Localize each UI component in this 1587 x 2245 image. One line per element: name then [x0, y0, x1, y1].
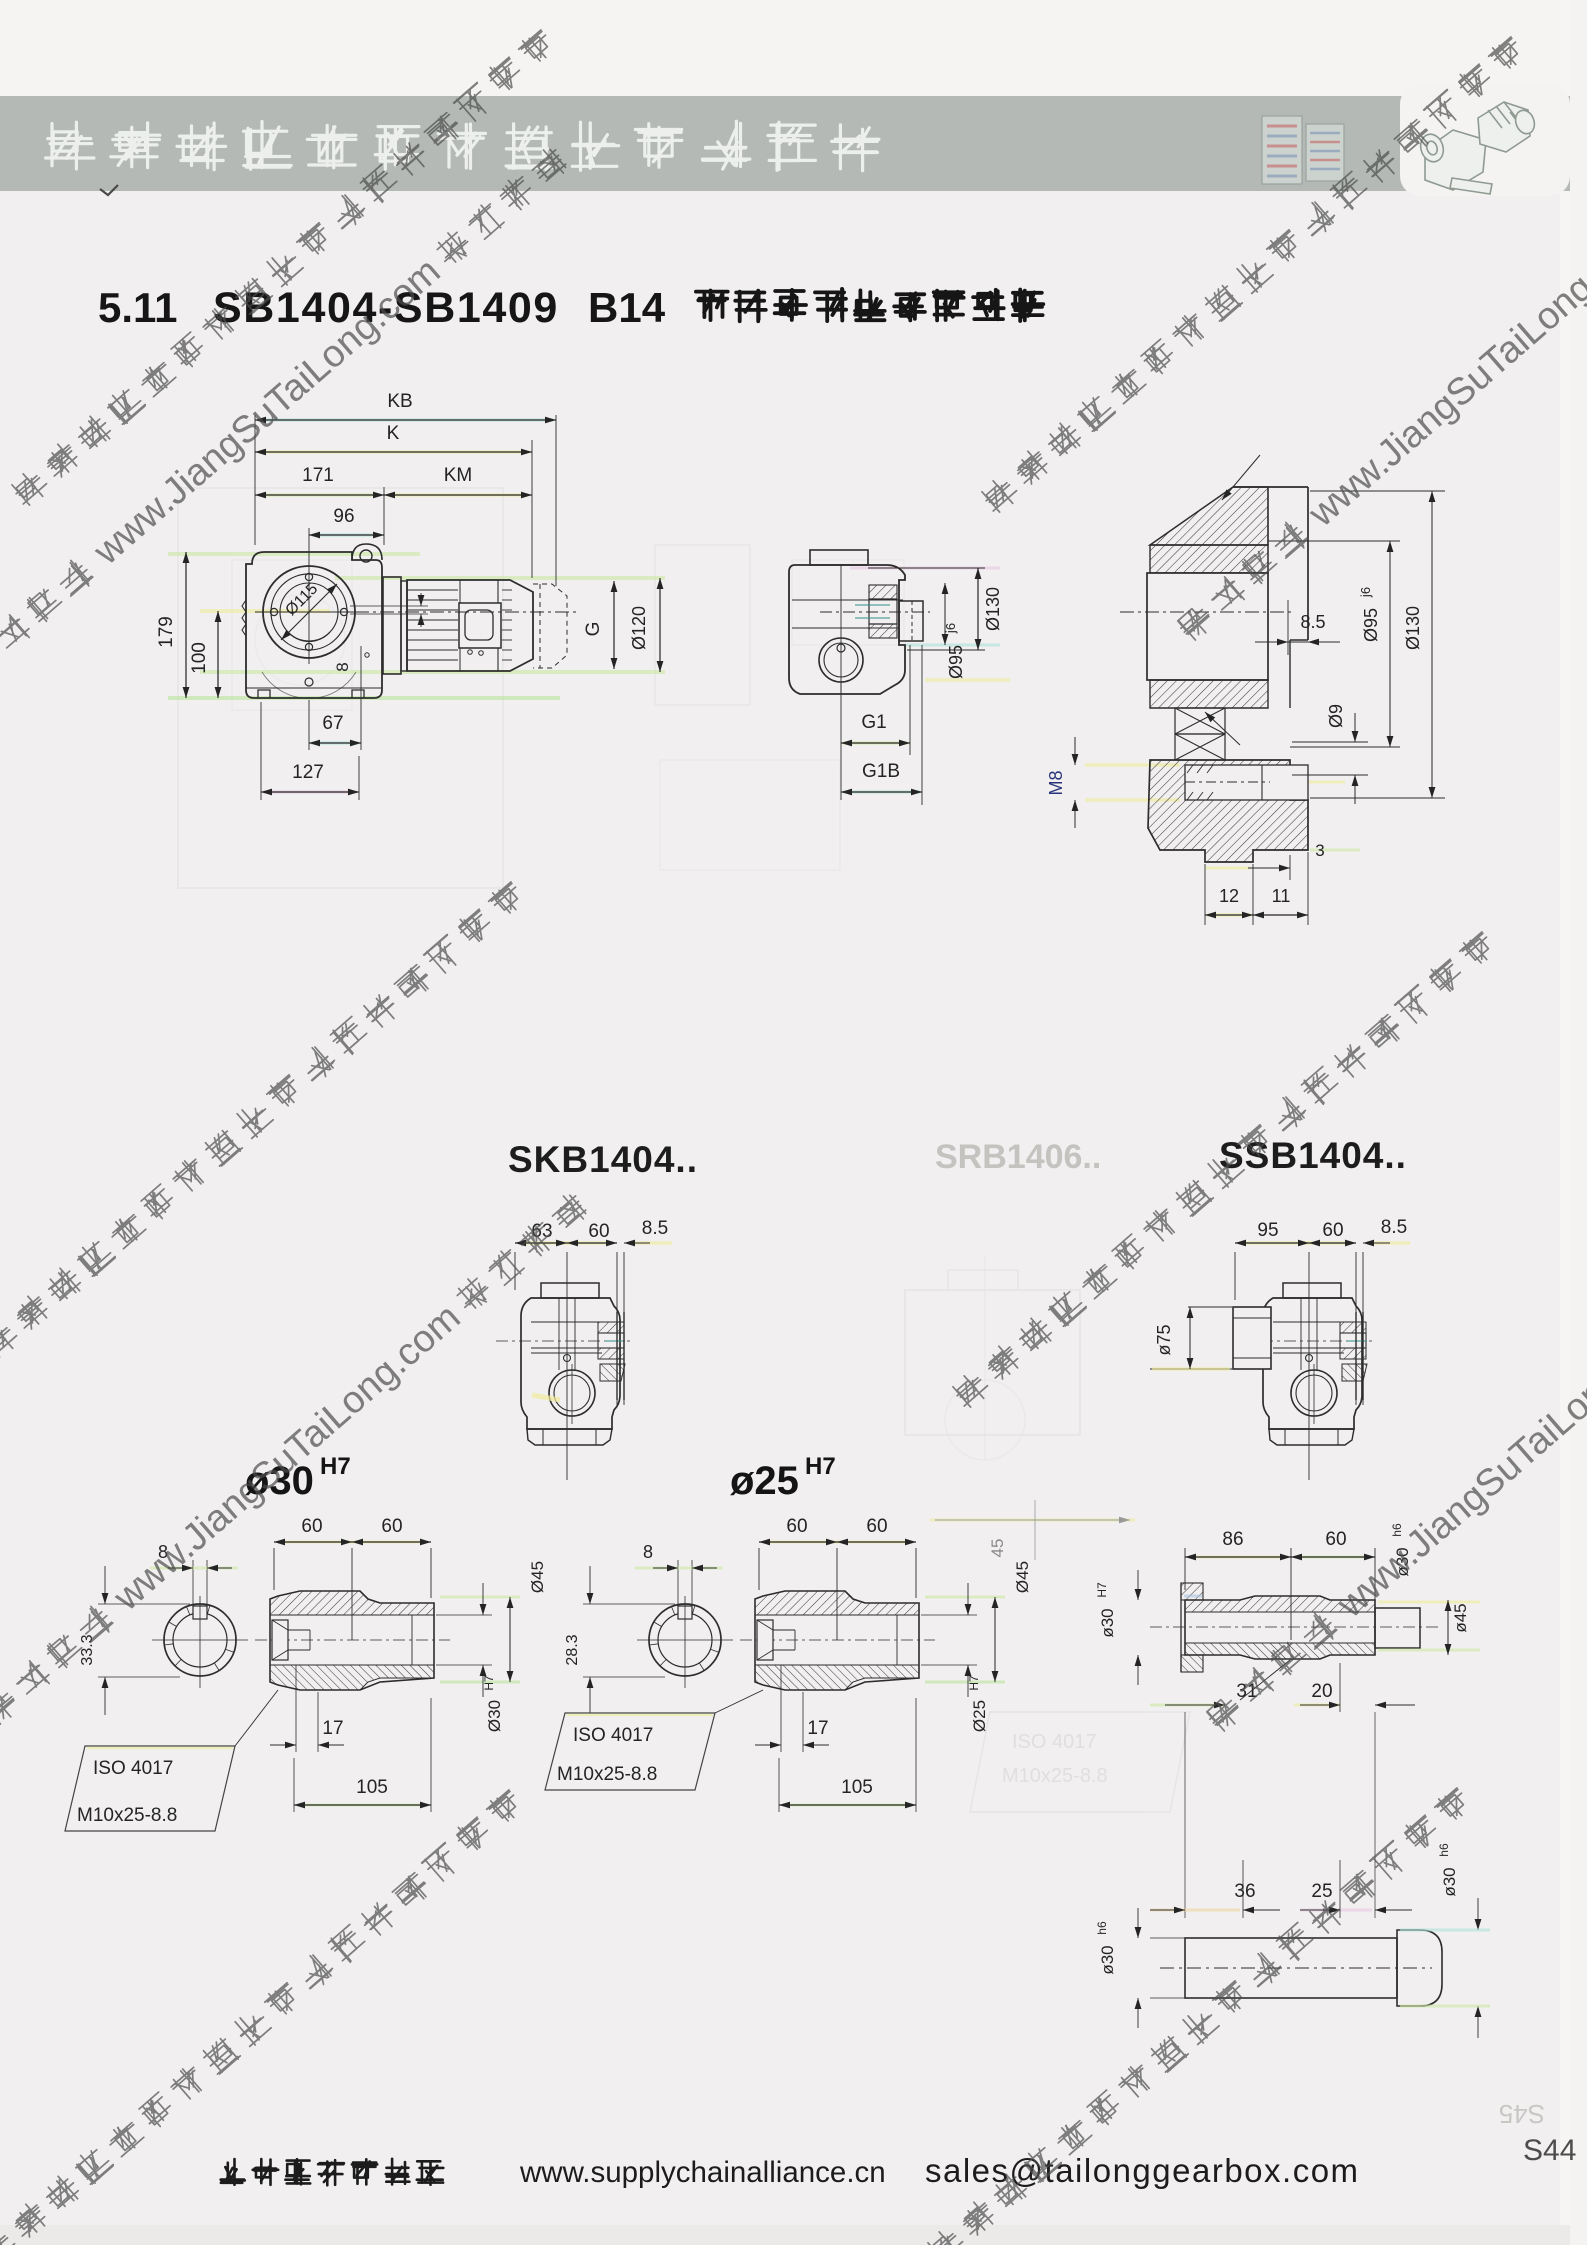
svg-text:17: 17 [807, 1718, 828, 1739]
svg-text:5.11: 5.11 [98, 284, 177, 331]
svg-text:SKB1404..: SKB1404.. [508, 1139, 698, 1180]
svg-text:60: 60 [1325, 1529, 1346, 1550]
svg-text:H7: H7 [482, 1675, 496, 1691]
svg-text:3: 3 [1315, 841, 1324, 860]
svg-text:B14: B14 [588, 284, 666, 331]
svg-text:8.5: 8.5 [1300, 612, 1325, 632]
svg-text:H7: H7 [320, 1453, 351, 1480]
svg-text:20: 20 [1311, 1681, 1332, 1702]
svg-text:67: 67 [322, 713, 343, 734]
svg-text:45: 45 [988, 1539, 1007, 1558]
svg-text:h6: h6 [1437, 1843, 1451, 1857]
svg-text:M8: M8 [1046, 770, 1066, 795]
svg-text:60: 60 [301, 1516, 322, 1537]
svg-text:8: 8 [333, 662, 352, 671]
svg-text:105: 105 [841, 1777, 873, 1798]
svg-text:Ø9: Ø9 [1326, 704, 1346, 728]
svg-text:Ø95: Ø95 [946, 645, 966, 679]
svg-text:11: 11 [1272, 886, 1291, 906]
svg-text:Ø120: Ø120 [629, 606, 649, 650]
svg-text:8.5: 8.5 [1381, 1217, 1407, 1238]
svg-text:ISO 4017: ISO 4017 [1012, 1731, 1097, 1753]
svg-text:Ø45: Ø45 [1013, 1561, 1032, 1593]
svg-text:M10x25-8.8: M10x25-8.8 [1002, 1765, 1108, 1787]
svg-text:8.5: 8.5 [642, 1218, 668, 1239]
svg-text:ø25: ø25 [730, 1459, 799, 1503]
svg-text:105: 105 [356, 1777, 388, 1798]
svg-text:12: 12 [1219, 886, 1239, 906]
svg-text:j6: j6 [943, 623, 958, 634]
svg-text:Ø30: Ø30 [485, 1700, 504, 1732]
svg-text:Ø130: Ø130 [1403, 606, 1423, 650]
svg-text:KB: KB [387, 391, 412, 412]
svg-text:H7: H7 [967, 1675, 981, 1691]
svg-text:S45: S45 [1499, 2099, 1545, 2129]
svg-text:Ø130: Ø130 [983, 587, 1003, 631]
svg-text:M10x25-8.8: M10x25-8.8 [77, 1805, 177, 1826]
svg-text:G: G [583, 622, 604, 637]
svg-text:sales@tailonggearbox.com: sales@tailonggearbox.com [925, 2152, 1360, 2189]
svg-text:86: 86 [1222, 1529, 1243, 1550]
svg-text:M10x25-8.8: M10x25-8.8 [557, 1764, 657, 1785]
svg-text:ø30: ø30 [1098, 1608, 1117, 1637]
svg-text:ø30: ø30 [1098, 1945, 1117, 1974]
svg-text:60: 60 [866, 1516, 887, 1537]
svg-text:KM: KM [444, 465, 473, 486]
svg-text:95: 95 [1257, 1220, 1278, 1241]
svg-text:Ø25: Ø25 [970, 1700, 989, 1732]
svg-text:25: 25 [1311, 1881, 1332, 1902]
svg-text:60: 60 [381, 1516, 402, 1537]
svg-text:Ø95: Ø95 [1361, 608, 1381, 642]
svg-text:100: 100 [189, 642, 210, 674]
svg-text:j6: j6 [1358, 587, 1373, 598]
svg-text:28.3: 28.3 [564, 1634, 581, 1665]
svg-text:G1B: G1B [862, 761, 900, 782]
svg-text:60: 60 [588, 1221, 609, 1242]
svg-text:ISO 4017: ISO 4017 [93, 1758, 173, 1779]
svg-text:60: 60 [786, 1516, 807, 1537]
svg-text:K: K [387, 423, 400, 444]
svg-text:ø45: ø45 [1451, 1603, 1470, 1632]
svg-text:60: 60 [1322, 1220, 1343, 1241]
svg-text:179: 179 [156, 616, 177, 648]
svg-text:36: 36 [1234, 1881, 1255, 1902]
svg-text:96: 96 [333, 506, 354, 527]
svg-text:SRB1406..: SRB1406.. [935, 1138, 1101, 1176]
svg-text:G1: G1 [861, 712, 886, 733]
svg-text:h6: h6 [1095, 1921, 1109, 1935]
svg-text:127: 127 [292, 762, 324, 783]
svg-text:H7: H7 [1095, 1582, 1109, 1598]
svg-text:ISO 4017: ISO 4017 [573, 1725, 653, 1746]
svg-text:www.supplychainalliance.cn: www.supplychainalliance.cn [519, 2156, 886, 2189]
svg-text:171: 171 [302, 465, 334, 486]
svg-text:8: 8 [643, 1542, 653, 1562]
svg-text:ø30: ø30 [1440, 1867, 1459, 1896]
svg-text:ø75: ø75 [1154, 1324, 1174, 1355]
svg-text:Ø45: Ø45 [528, 1561, 547, 1593]
svg-text:H7: H7 [805, 1453, 836, 1480]
svg-text:S44: S44 [1523, 2134, 1576, 2167]
svg-text:17: 17 [322, 1718, 343, 1739]
